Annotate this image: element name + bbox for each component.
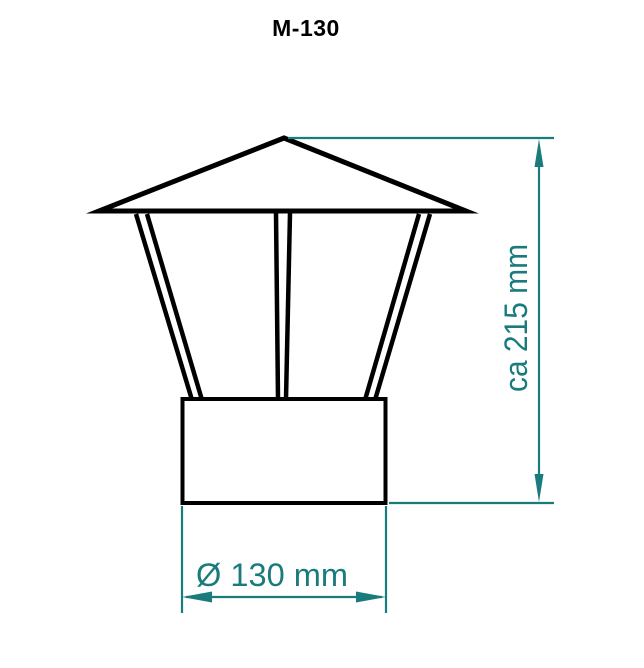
diameter-dimension-label: Ø 130 mm [196, 557, 348, 593]
right-leg-inner-strut [365, 214, 419, 400]
arrow-up-icon [535, 139, 544, 167]
technical-drawing-canvas: ca 215 mm Ø 130 mm [0, 0, 644, 668]
left-support-leg [136, 214, 202, 400]
diameter-dimension: Ø 130 mm [182, 506, 386, 613]
roof-cone-outline [99, 138, 466, 211]
arrow-right-icon [356, 592, 386, 603]
pipe-collar-body [183, 399, 386, 503]
arrow-down-icon [535, 474, 544, 502]
right-support-leg [365, 214, 430, 400]
part-geometry [99, 138, 466, 503]
center-support-post [276, 213, 290, 399]
drawing-sheet: M-130 [0, 0, 644, 668]
center-post-right-edge [286, 213, 290, 399]
center-post-left-edge [276, 213, 278, 399]
left-leg-outer-strut [136, 214, 192, 400]
right-leg-outer-strut [375, 214, 430, 400]
arrow-left-icon [182, 592, 212, 603]
left-leg-inner-strut [147, 214, 202, 400]
height-dimension-label: ca 215 mm [498, 244, 534, 392]
